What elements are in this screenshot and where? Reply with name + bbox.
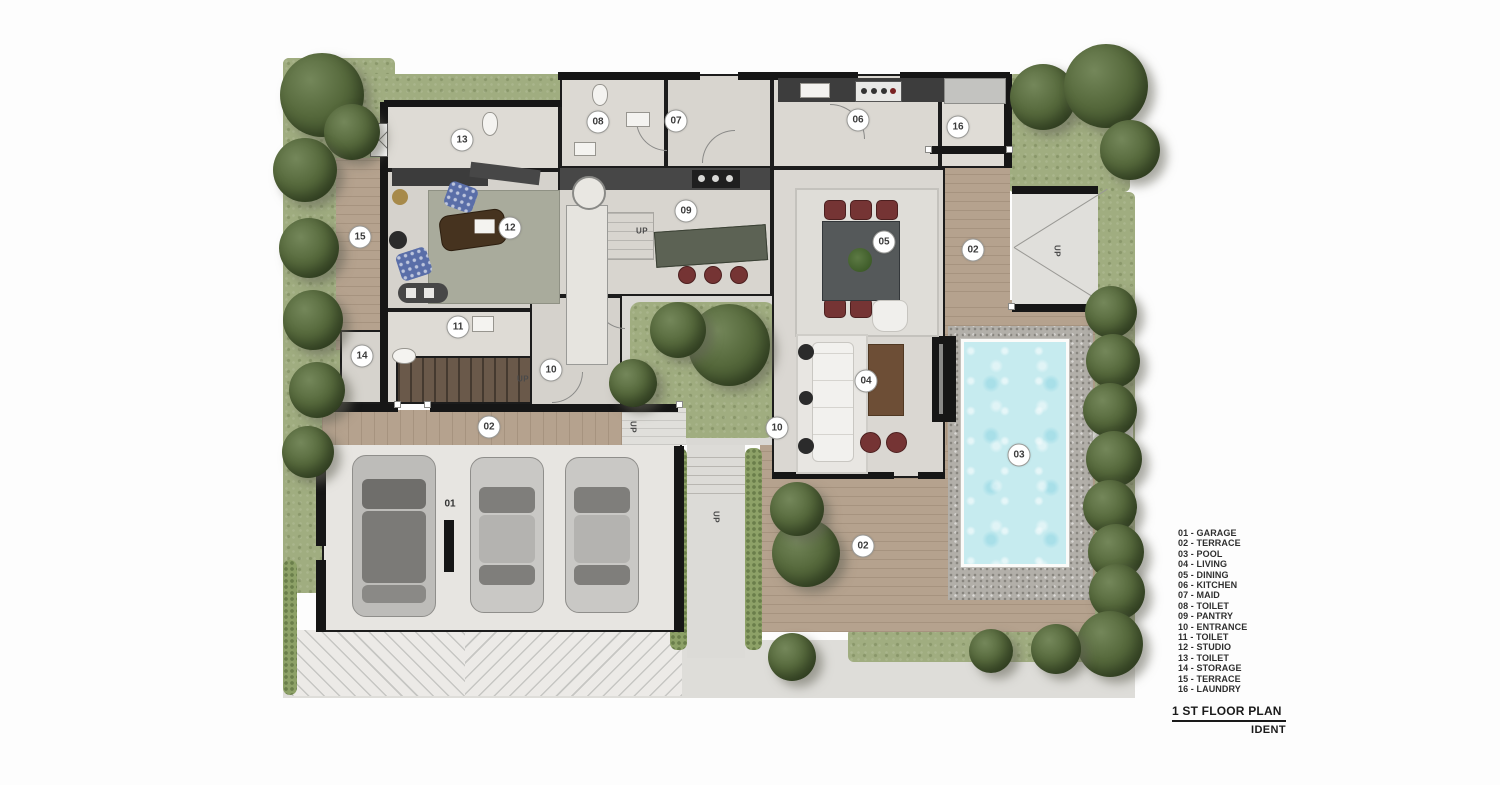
living-pouf bbox=[886, 432, 907, 453]
front-walkway-steps bbox=[687, 450, 745, 494]
toilet-11-wc bbox=[392, 348, 416, 364]
legend-item: 11 - TOILET bbox=[1178, 632, 1328, 642]
wall-joint bbox=[394, 401, 401, 408]
legend-item: 07 - MAID bbox=[1178, 590, 1328, 600]
wall-joint bbox=[925, 146, 932, 153]
stove-burner bbox=[712, 175, 719, 182]
pantry-stove bbox=[692, 170, 740, 188]
car-rear-glass bbox=[479, 565, 535, 585]
tree bbox=[273, 138, 337, 202]
car-sedan bbox=[565, 457, 639, 613]
island-stool bbox=[678, 266, 696, 284]
up-label-front-steps: UP bbox=[629, 421, 638, 433]
legend-item: 08 - TOILET bbox=[1178, 601, 1328, 611]
wall-garage-left-2 bbox=[316, 560, 326, 632]
hall-planter bbox=[566, 205, 608, 365]
sheet-subtitle: IDENT bbox=[1172, 724, 1286, 736]
side-table bbox=[799, 391, 813, 405]
toilet-08-sink bbox=[574, 142, 596, 156]
tree bbox=[283, 290, 343, 350]
driveway-hatch-right bbox=[465, 630, 682, 696]
living-pouf bbox=[860, 432, 881, 453]
studio-vanity bbox=[398, 283, 448, 303]
wall-left-wing-top bbox=[384, 100, 562, 107]
wall-garage-right bbox=[674, 446, 684, 632]
vanity-sink bbox=[406, 288, 416, 298]
dining-chair bbox=[850, 200, 872, 220]
room-label-dining-05: 05 bbox=[873, 231, 896, 254]
kitchen-sink bbox=[800, 83, 830, 98]
tree bbox=[768, 633, 816, 681]
stove-burner bbox=[726, 175, 733, 182]
legend-item: 10 - ENTRANCE bbox=[1178, 622, 1328, 632]
garage-bay-divider bbox=[444, 520, 454, 572]
dining-chair bbox=[824, 200, 846, 220]
media-wall bbox=[932, 336, 956, 422]
car-windshield bbox=[574, 487, 630, 513]
legend-item: 13 - TOILET bbox=[1178, 653, 1328, 663]
room-label-living-04: 04 bbox=[855, 370, 878, 393]
up-label-right-stairs: UP bbox=[1053, 245, 1062, 257]
wall-joint bbox=[424, 401, 431, 408]
room-label-storage-14: 14 bbox=[351, 345, 374, 368]
tree bbox=[1086, 431, 1142, 487]
wall-living-south-2 bbox=[918, 472, 945, 479]
street-hedge bbox=[283, 560, 297, 695]
tree bbox=[282, 426, 334, 478]
tree bbox=[1100, 120, 1160, 180]
tree bbox=[770, 482, 824, 536]
tree bbox=[650, 302, 706, 358]
wall-north-1 bbox=[558, 72, 700, 80]
media-wall-inlay bbox=[939, 344, 943, 414]
legend-item: 14 - STORAGE bbox=[1178, 663, 1328, 673]
legend-item: 02 - TERRACE bbox=[1178, 538, 1328, 548]
car-suv bbox=[352, 455, 436, 617]
legend-item: 16 - LAUNDRY bbox=[1178, 684, 1328, 694]
title-block: 1 ST FLOOR PLAN IDENT bbox=[1172, 704, 1286, 736]
legend-item: 06 - KITCHEN bbox=[1178, 580, 1328, 590]
car-roof bbox=[362, 511, 426, 583]
tree bbox=[1031, 624, 1081, 674]
kitchen-fridge bbox=[944, 78, 1006, 104]
legend-item: 01 - GARAGE bbox=[1178, 528, 1328, 538]
tree bbox=[1077, 611, 1143, 677]
living-armchair bbox=[872, 300, 908, 332]
up-label-walkway: UP bbox=[712, 511, 721, 523]
dining-chair bbox=[824, 298, 846, 318]
wall-joint bbox=[1006, 146, 1013, 153]
room-label-terrace-02-strip: 02 bbox=[478, 416, 501, 439]
island-stool bbox=[730, 266, 748, 284]
legend-item: 03 - POOL bbox=[1178, 549, 1328, 559]
tree bbox=[609, 359, 657, 407]
up-label-entry-stairs: UP bbox=[517, 375, 529, 384]
vanity-sink bbox=[424, 288, 434, 298]
walkway-hedge-right bbox=[745, 448, 762, 650]
room-label-pool-03: 03 bbox=[1008, 444, 1031, 467]
wall-deck-right-top bbox=[930, 146, 1010, 154]
stove-burner bbox=[890, 88, 896, 94]
room-label-toilet-13: 13 bbox=[451, 129, 474, 152]
toilet-13-wc bbox=[482, 112, 498, 136]
room-label-terrace-15: 15 bbox=[349, 226, 372, 249]
room-label-entrance-10: 10 bbox=[540, 359, 563, 382]
car-windshield bbox=[479, 487, 535, 513]
dining-chair bbox=[850, 298, 872, 318]
car-roof bbox=[574, 515, 630, 563]
driveway-hatch-left bbox=[292, 630, 465, 696]
wall-joint bbox=[1008, 303, 1015, 310]
tree bbox=[1086, 334, 1140, 388]
tree bbox=[1064, 44, 1148, 128]
room-label-toilet-08: 08 bbox=[587, 111, 610, 134]
dining-centerpiece-plant bbox=[848, 248, 872, 272]
room-label-maid-07: 07 bbox=[665, 110, 688, 133]
living-sofa bbox=[812, 342, 854, 462]
tree bbox=[279, 218, 339, 278]
room-label-entrance-10-court: 10 bbox=[766, 417, 789, 440]
room-label-kitchen-06: 06 bbox=[847, 109, 870, 132]
room-label-garage-01: 01 bbox=[440, 494, 461, 515]
room-label-studio-12: 12 bbox=[499, 217, 522, 240]
car-sedan bbox=[470, 457, 544, 613]
stove-burner bbox=[698, 175, 705, 182]
wall-stairs-top bbox=[1012, 186, 1098, 194]
tree bbox=[1085, 286, 1137, 338]
studio-side-table-gold bbox=[392, 189, 408, 205]
toilet-13-sink bbox=[626, 112, 650, 127]
stove-burner bbox=[881, 88, 887, 94]
tree bbox=[1083, 383, 1137, 437]
side-table bbox=[798, 344, 814, 360]
island-stool bbox=[704, 266, 722, 284]
car-rear-glass bbox=[574, 565, 630, 585]
room-label-terrace-02-right: 02 bbox=[962, 239, 985, 262]
legend-item: 05 - DINING bbox=[1178, 570, 1328, 580]
up-label-pantry-stairs: UP bbox=[636, 227, 648, 236]
tree bbox=[289, 362, 345, 418]
sheet-title: 1 ST FLOOR PLAN bbox=[1172, 704, 1286, 722]
legend-item: 09 - PANTRY bbox=[1178, 611, 1328, 621]
stove-burner bbox=[871, 88, 877, 94]
stove-burner bbox=[861, 88, 867, 94]
wall-joint bbox=[676, 401, 683, 408]
kitchen-stove bbox=[855, 81, 902, 102]
toilet-11-sink bbox=[472, 316, 494, 332]
legend-item: 04 - LIVING bbox=[1178, 559, 1328, 569]
tree bbox=[324, 104, 380, 160]
stairs-entry bbox=[396, 356, 532, 404]
room-label-laundry-16: 16 bbox=[947, 116, 970, 139]
legend-item: 12 - STUDIO bbox=[1178, 642, 1328, 652]
dining-chair bbox=[876, 200, 898, 220]
legend-item: 15 - TERRACE bbox=[1178, 674, 1328, 684]
room-label-terrace-02-main: 02 bbox=[852, 535, 875, 558]
hall-basin bbox=[572, 176, 606, 210]
car-windshield bbox=[362, 479, 426, 509]
tree bbox=[969, 629, 1013, 673]
studio-side-table bbox=[389, 231, 407, 249]
floor-plan-sheet: 13 08 07 06 16 15 12 09 05 02 11 14 10 0… bbox=[0, 0, 1500, 785]
toilet-08-wc bbox=[592, 84, 608, 106]
car-roof bbox=[479, 515, 535, 563]
room-label-pantry-09: 09 bbox=[675, 200, 698, 223]
legend: 01 - GARAGE 02 - TERRACE 03 - POOL 04 - … bbox=[1178, 528, 1328, 695]
car-rear-glass bbox=[362, 585, 426, 603]
desk-papers bbox=[475, 219, 495, 233]
side-table bbox=[798, 438, 814, 454]
room-label-toilet-11: 11 bbox=[447, 316, 470, 339]
